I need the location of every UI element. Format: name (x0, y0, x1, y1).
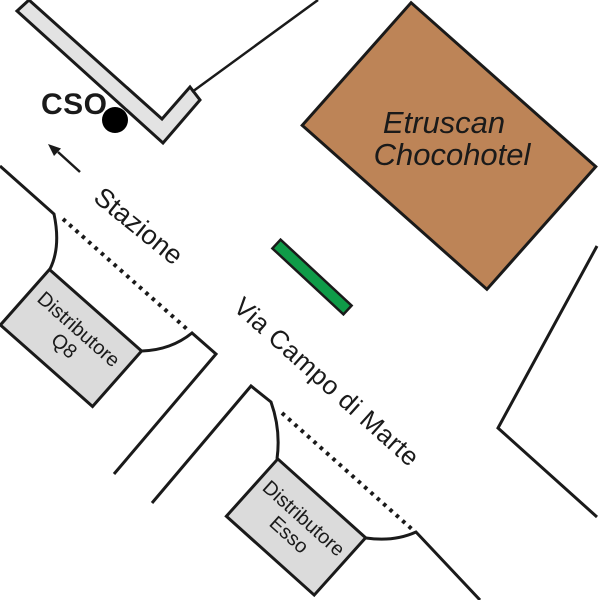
map-canvas: CSO Stazione Distributore Q8 (0, 0, 600, 600)
hotel-label-line1: Etruscan (383, 105, 505, 140)
cso-label: CSO (41, 88, 108, 121)
location-map: CSO Stazione Distributore Q8 (0, 0, 600, 600)
cso-location-dot (102, 107, 128, 133)
hotel-label-line2: Chocohotel (374, 137, 532, 172)
